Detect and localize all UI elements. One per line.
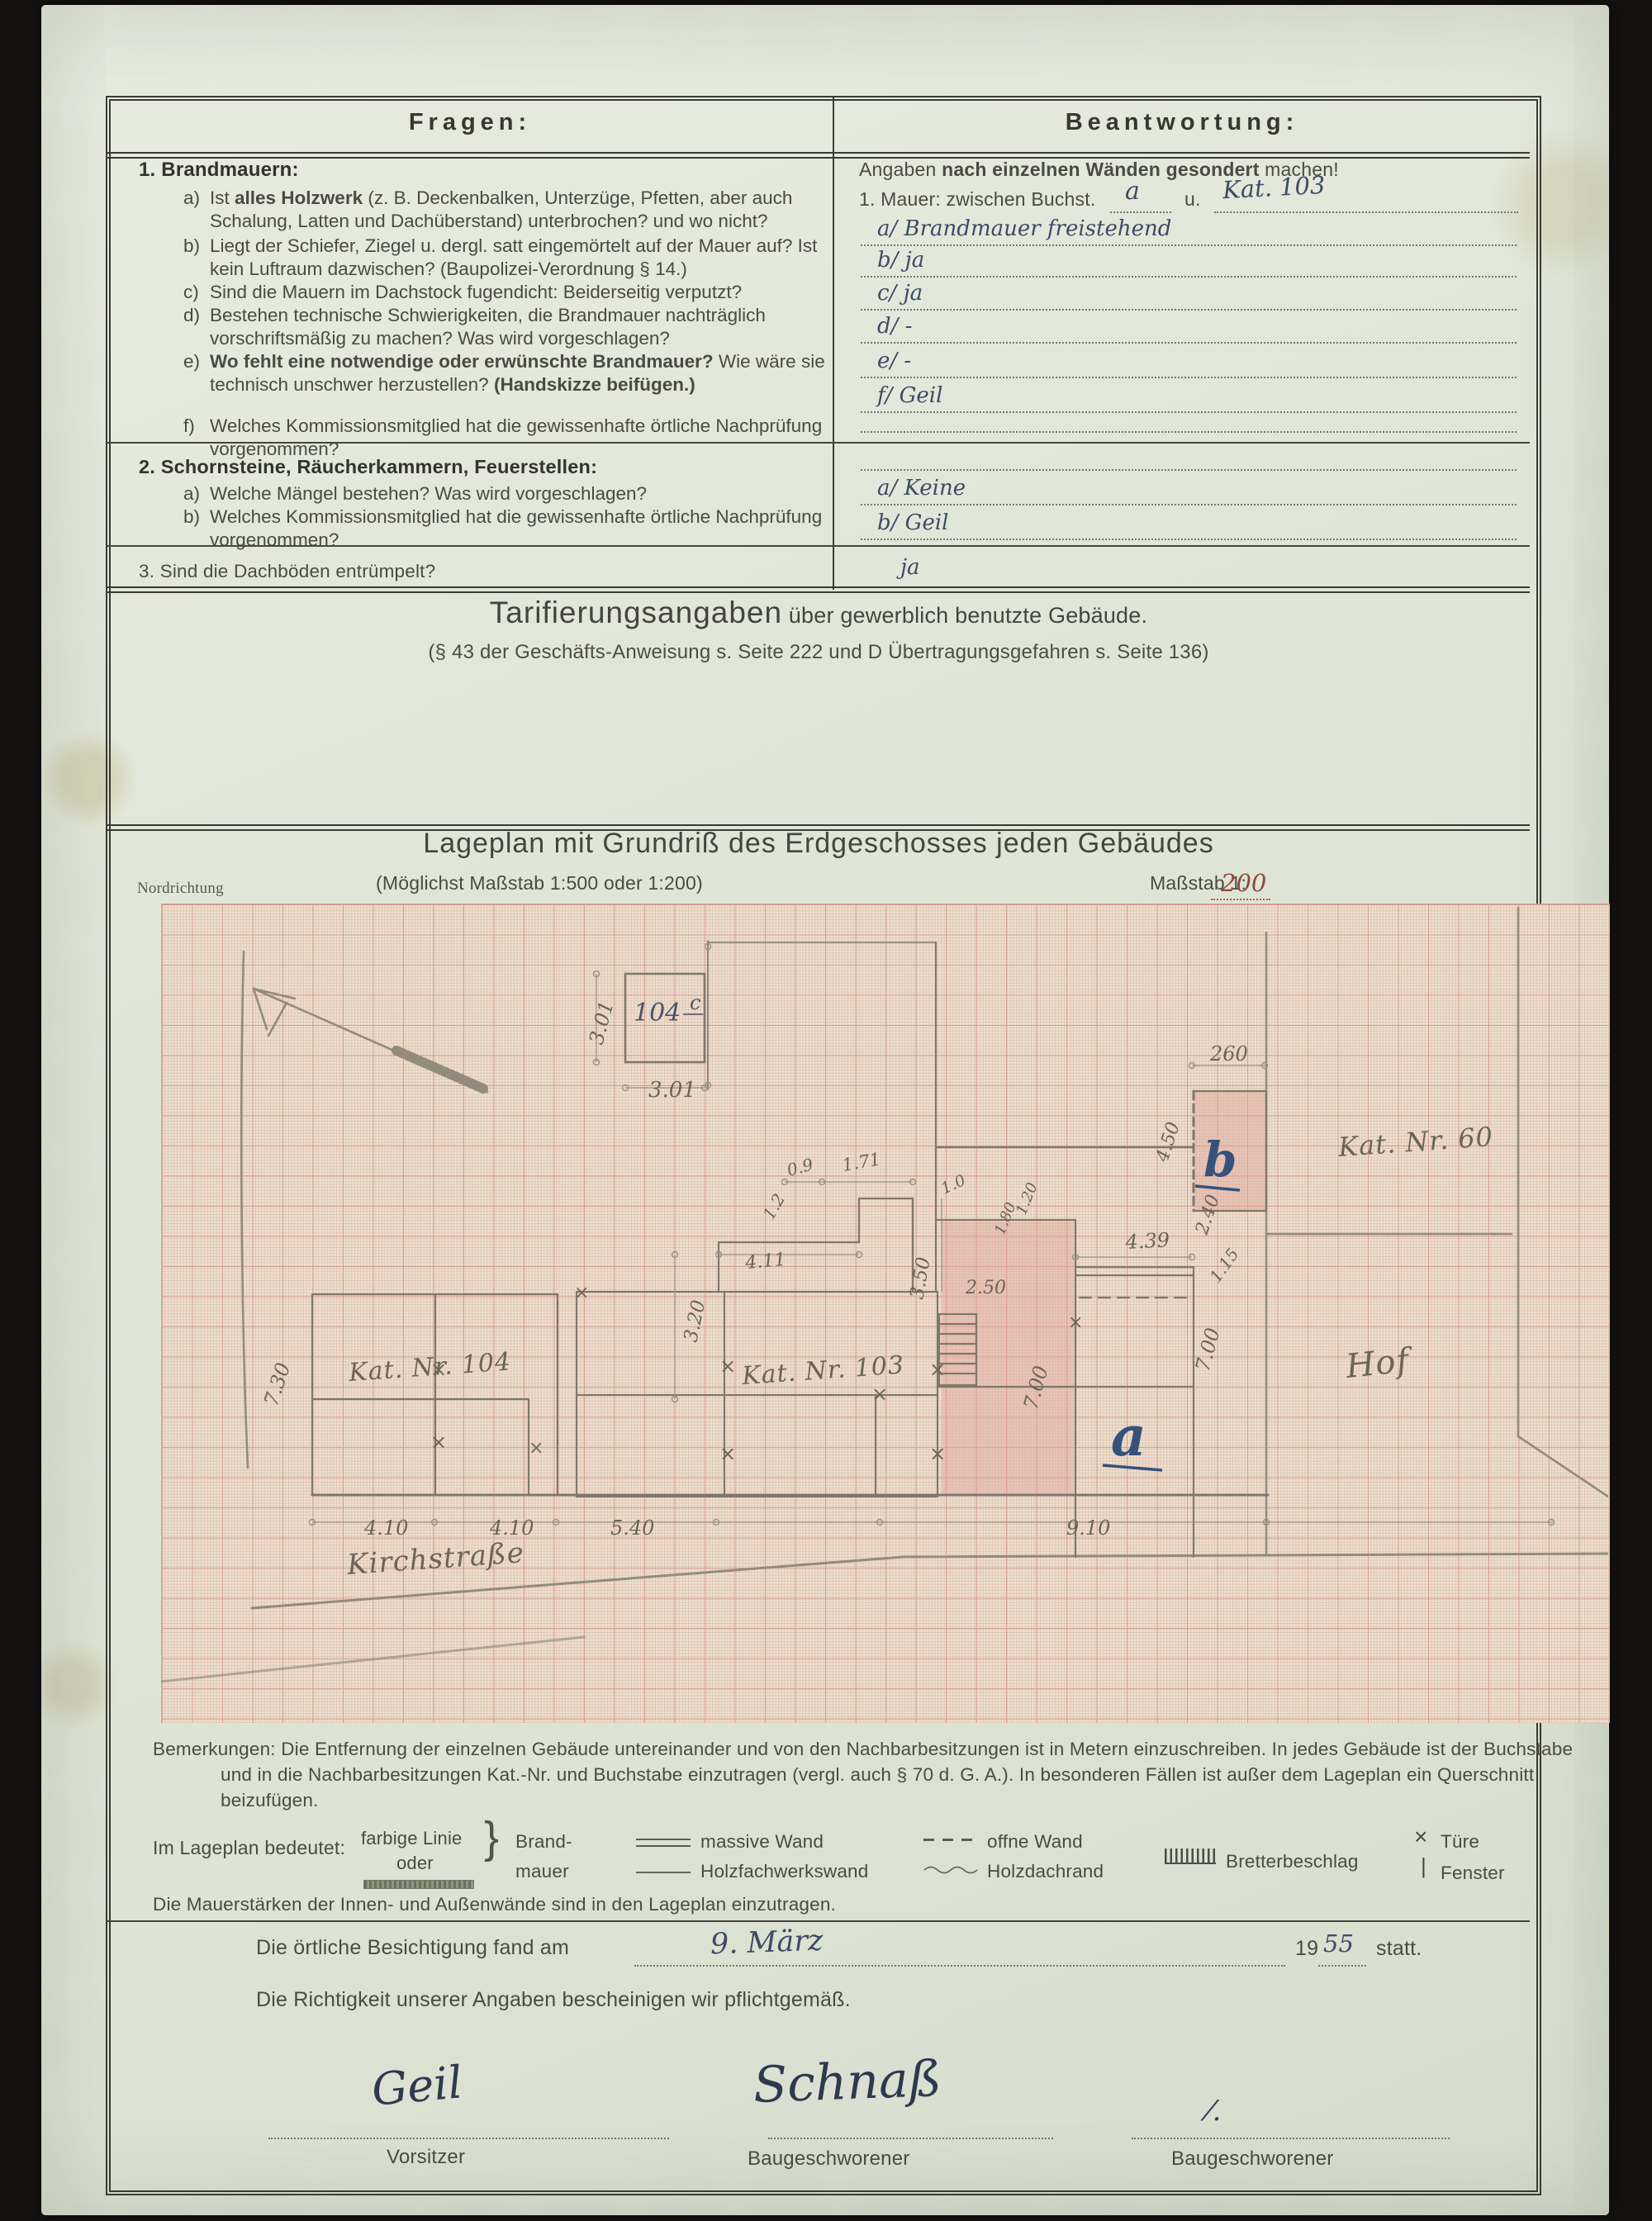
answer-line — [861, 539, 1517, 540]
tarif-subtitle: (§ 43 der Geschäfts-Anweisung s. Seite 2… — [106, 641, 1531, 664]
hw-wall-letter: a — [1125, 177, 1140, 206]
plan-door-mark: × — [430, 1431, 447, 1454]
scale-underline — [1211, 899, 1270, 900]
plan-dim: 3.01 — [585, 999, 619, 1047]
hw-answer-a: a/ Brandmauer freistehend — [877, 216, 1171, 241]
plan-dim: 5.40 — [610, 1516, 654, 1540]
plan-door-mark: × — [1068, 1312, 1083, 1333]
plan-label-104c-sup: c — [690, 991, 700, 1014]
q1d: d)Bestehen technische Schwierigkeiten, d… — [210, 304, 851, 349]
colored-line-symbol — [363, 1880, 474, 1889]
col-header-questions: Fragen: — [107, 109, 833, 136]
hw-answer-2b: b/ Geil — [877, 510, 948, 535]
plan-dim: 3.50 — [906, 1255, 934, 1301]
legend-oder: oder — [396, 1852, 434, 1875]
signature-line — [768, 2138, 1053, 2139]
plan-dim: 9.10 — [1066, 1516, 1110, 1540]
year-line — [1318, 1965, 1366, 1967]
q2a: a)Welche Mängel bestehen? Was wird vorge… — [210, 482, 851, 505]
plan-dim: 1.71 — [841, 1149, 882, 1175]
plan-dim: 4.11 — [743, 1250, 786, 1274]
plan-door-mark: × — [871, 1383, 888, 1406]
plan-label-kat60: Kat. Nr. 60 — [1336, 1121, 1494, 1163]
plan-dim: 4.50 — [1152, 1120, 1184, 1165]
role-baugeschworener-1: Baugeschworener — [748, 2147, 909, 2171]
answer-line — [861, 504, 1517, 505]
plan-door-mark: × — [529, 1438, 544, 1459]
section3-rule — [107, 586, 1530, 593]
signature-baugeschworener-1: Schnaß — [752, 2050, 942, 2114]
plan-building-a: a — [1111, 1404, 1146, 1469]
q1-title: 1. Brandmauern: — [139, 159, 299, 182]
blank-line — [1110, 211, 1171, 213]
plan-dim: 2.50 — [965, 1278, 1006, 1298]
plan-dim: 7.30 — [259, 1360, 295, 1408]
answer-line — [861, 342, 1517, 344]
answer-line — [861, 377, 1517, 378]
answer-line — [861, 431, 1517, 433]
role-baugeschworener-2: Baugeschworener — [1171, 2147, 1333, 2171]
massive-wall-symbol — [636, 1839, 691, 1847]
plan-dim: 260 — [1209, 1042, 1248, 1065]
legend-brandmauer-1: Brand- — [515, 1830, 572, 1853]
plan-door-mark: × — [929, 1442, 946, 1465]
signature-line — [268, 2138, 669, 2139]
legend-intro: Im Lageplan bedeutet: — [153, 1837, 345, 1860]
hw-answer-c: c/ ja — [877, 281, 923, 306]
answer-line — [861, 411, 1517, 413]
hw-answer-e: e/ - — [877, 349, 911, 373]
plan-dim: 4.39 — [1124, 1228, 1170, 1254]
wood-roof-edge-symbol — [923, 1863, 978, 1875]
hw-answer-b: b/ ja — [877, 248, 924, 273]
window-symbol: | — [1421, 1855, 1427, 1878]
q1e: e)Wo fehlt eine notwendige oder erwünsch… — [210, 350, 851, 396]
hw-answer-2a: a/ Keine — [877, 476, 966, 501]
plan-door-mark: × — [719, 1355, 736, 1378]
plan-label-street: Kirchstraße — [345, 1536, 525, 1582]
q2-title: 2. Schornsteine, Räucherkammern, Feuerst… — [139, 456, 597, 479]
answer-line — [861, 309, 1517, 311]
legend-holzfachwerkswand: Holzfachwerkswand — [700, 1860, 868, 1883]
plan-door-mark: × — [430, 1358, 447, 1381]
hw-answer-f: f/ Geil — [877, 383, 942, 408]
signature-baugeschworener-2: ⁄. — [1208, 2095, 1222, 2128]
bemerkungen: Bemerkungen: Die Entfernung der einzelne… — [153, 1736, 1590, 1813]
answer-line — [861, 276, 1517, 278]
signature-vorsitzer: Geil — [369, 2056, 464, 2115]
plan-door-mark: × — [574, 1283, 589, 1303]
hw-visit-date: 9. März — [710, 1924, 824, 1962]
plan-building-b: b — [1203, 1132, 1237, 1188]
plan-door-mark: × — [929, 1358, 946, 1381]
role-vorsitzer: Vorsitzer — [387, 2146, 465, 2169]
plan-label-104c: 104 — [634, 999, 681, 1027]
hw-answer-d: d/ - — [877, 314, 912, 339]
tarif-title: Tarifierungsangaben über gewerblich benu… — [106, 601, 1531, 629]
legend-offne-wand: offne Wand — [987, 1830, 1083, 1853]
answer-line — [861, 469, 1517, 471]
north-label: Nordrichtung — [137, 877, 224, 900]
open-wall-symbol — [923, 1839, 978, 1841]
q1a: a)Ist alles Holzwerk (z. B. Deckenbalken… — [210, 187, 851, 232]
visit-statt: statt. — [1376, 1938, 1422, 1961]
q1f: f)Welches Kommissionsmitglied hat die ge… — [210, 415, 851, 460]
north-arrow — [254, 989, 487, 1092]
signature-line — [1132, 2138, 1450, 2139]
legend-fenster: Fenster — [1441, 1862, 1505, 1885]
legend-tuere: Türe — [1441, 1830, 1479, 1853]
timber-frame-wall-symbol — [636, 1872, 691, 1873]
plan-dim: 1.20 — [1013, 1180, 1041, 1217]
site-plan-drawing: 104c3.013.010.91.711.24.113.203.507.30Ka… — [161, 904, 1608, 1722]
lageplan-subtitle: (Möglichst Maßstab 1:500 oder 1:200) — [376, 872, 703, 895]
pink-shaded-area — [942, 1222, 1074, 1494]
wall-thickness-note: Die Mauerstärken der Innen- und Außenwän… — [153, 1893, 836, 1916]
plan-label-hof: Hof — [1343, 1341, 1415, 1386]
header-rule — [107, 152, 1530, 159]
legend-bottom-rule — [107, 1920, 1530, 1922]
plan-dim: 1.2 — [759, 1190, 790, 1223]
hw-answer-3: ja — [900, 555, 920, 580]
q2b: b)Welches Kommissionsmitglied hat die ge… — [210, 505, 851, 551]
answer-line — [861, 244, 1517, 246]
visit-date-line — [634, 1965, 1285, 1967]
col-header-answers: Beantwortung: — [834, 109, 1530, 136]
plan-dim: 4.10 — [363, 1516, 408, 1540]
plan-door-mark: × — [719, 1442, 736, 1465]
legend-massive-wand: massive Wand — [700, 1830, 824, 1853]
door-symbol: × — [1414, 1825, 1428, 1848]
lageplan-title: Lageplan mit Grundriß des Erdgeschosses … — [106, 833, 1531, 856]
q1c: c)Sind die Mauern im Dachstock fugendich… — [210, 281, 851, 304]
ans1-mauer-line: 1. Mauer: zwischen Buchst. — [859, 188, 1095, 211]
ans1-u: u. — [1184, 188, 1201, 211]
hw-scale-value: 200 — [1221, 869, 1266, 897]
plan-dim: 3.20 — [680, 1298, 710, 1345]
legend-bretterbeschlag: Bretterbeschlag — [1226, 1850, 1359, 1873]
board-cladding-symbol — [1165, 1848, 1216, 1864]
blank-line — [1214, 211, 1518, 213]
plan-dim: 0.9 — [785, 1154, 815, 1179]
hw-kat-number: Kat. 103 — [1222, 171, 1326, 204]
legend-brandmauer-2: mauer — [515, 1860, 569, 1883]
visit-year-print: 19 — [1295, 1938, 1318, 1961]
visit-line: Die örtliche Besichtigung fand am — [256, 1937, 569, 1960]
plan-dim: 1.15 — [1205, 1245, 1242, 1286]
hw-visit-year: 55 — [1323, 1929, 1354, 1958]
scanned-form-page: Fragen: Beantwortung: 1. Brandmauern: a)… — [0, 0, 1652, 2221]
q1b: b)Liegt der Schiefer, Ziegel u. dergl. s… — [210, 235, 851, 280]
certify-line: Die Richtigkeit unserer Angaben beschein… — [256, 1989, 851, 2012]
plan-dim: 4.10 — [489, 1516, 534, 1540]
plan-dim: 1.0 — [938, 1171, 969, 1198]
legend-farbige-linie: farbige Linie — [361, 1827, 462, 1850]
q3: 3. Sind die Dachböden entrümpelt? — [139, 560, 435, 583]
plan-dim: 3.01 — [648, 1078, 696, 1103]
legend-holzdachrand: Holzdachrand — [987, 1860, 1104, 1883]
plan-dim: 7.00 — [1191, 1326, 1225, 1374]
legend-brace: } — [484, 1827, 499, 1850]
